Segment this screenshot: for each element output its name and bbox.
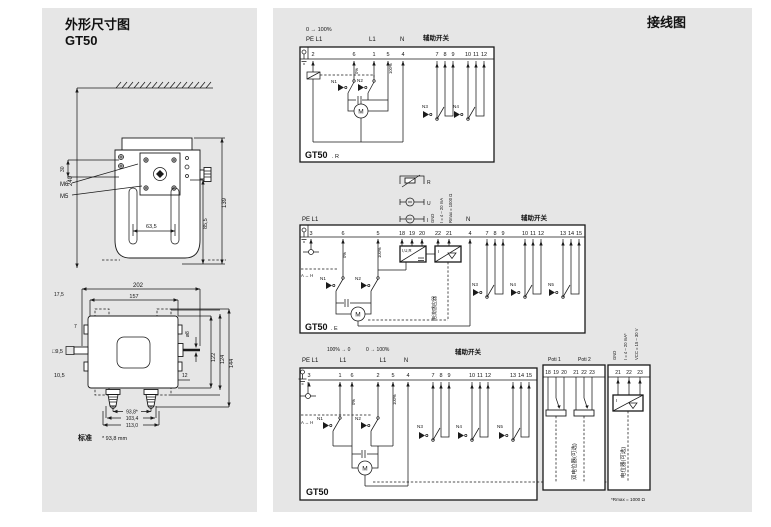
converter-iur: I,U,R — [402, 248, 412, 253]
terminal-9: 9 — [447, 373, 450, 379]
top-view-body — [66, 309, 200, 409]
potentiometer-icon — [546, 410, 566, 416]
terminal-22: 22 — [435, 231, 441, 237]
dim-113-0: 113,0 — [126, 423, 138, 429]
dimension-panel: 外形尺寸图 GT50 — [42, 8, 257, 512]
model-name: GT50 — [65, 33, 130, 49]
pe-l1-label: PE L1 — [306, 37, 323, 43]
gnd-label: GND — [612, 351, 617, 360]
aux-switch-label: 辅助开关 — [455, 347, 482, 356]
pct-0: 0% — [354, 68, 359, 74]
poti-option-label: 电位器(可选) — [619, 447, 627, 478]
terminal-18: 18 — [545, 370, 551, 376]
terminal-21: 21 — [573, 370, 579, 376]
terminal-15: 15 — [526, 373, 532, 379]
standard-label: 标准 — [77, 433, 92, 442]
terminal-4: 4 — [468, 231, 471, 237]
cable-gland-icon — [106, 390, 120, 395]
terminal-6: 6 — [350, 373, 353, 379]
pe-l1-label: PE L1 — [302, 217, 319, 223]
dim-144: 144 — [229, 359, 235, 368]
dim-93-8: 93,8* — [126, 410, 138, 416]
terminal-7: 7 — [485, 231, 488, 237]
poti1-label: Poti 1 — [548, 357, 561, 363]
terminal-4: 4 — [401, 52, 404, 58]
terminal-23: 23 — [637, 370, 643, 376]
poti-option-box: Poti 1 Poti 2 18 19 20 21 22 23 双电位器(可选) — [543, 357, 605, 490]
range-close-label: 100% → 0 — [327, 347, 351, 353]
switch-n5: N5 — [548, 282, 554, 287]
actuator-body — [102, 138, 226, 260]
terminal-21: 21 — [615, 370, 621, 376]
terminal-10: 10 — [465, 52, 471, 58]
converter-i: I — [616, 398, 617, 403]
diagram-gt50-e: PE L1 N 辅助开关 3 6 5 18 19 20 22 21 4 7 8 … — [300, 213, 585, 333]
auto-manual-label: A ↔ H — [301, 420, 313, 425]
relay-icon — [307, 72, 320, 79]
dim-103-4: 103,4 — [126, 416, 139, 422]
rmax-footnote: *Rmax = 1000 Ω — [611, 497, 646, 502]
source-i-label: I — [427, 218, 428, 224]
l1-label: L1 — [380, 358, 387, 364]
terminal-3: 3 — [309, 231, 312, 237]
diagram-gt50-r: 0 → 100% PE L1 L1 N 辅助开关 2 6 1 5 4 7 8 9… — [300, 27, 494, 162]
switch-n1: N1 — [320, 276, 326, 281]
model-gt50-r: GT50 — [305, 150, 328, 160]
motor-m: M — [355, 312, 360, 319]
current-sensor-label: 电流感应器 — [431, 296, 438, 321]
pct-0: 0% — [342, 252, 347, 258]
dim-30: 30 — [60, 166, 66, 172]
terminal-22: 22 — [626, 370, 632, 376]
switch-n2: N2 — [355, 416, 361, 421]
terminal-9: 9 — [501, 231, 504, 237]
page-title: 外形尺寸图 — [65, 17, 130, 33]
terminal-13: 13 — [560, 231, 566, 237]
ceiling-hatch — [77, 82, 213, 88]
model-suffix-e: . E — [331, 326, 338, 332]
source-u-label: U — [427, 201, 431, 207]
aux-switch-label: 辅助开关 — [521, 213, 548, 222]
dual-poti-label: 双电位器(可选) — [570, 443, 578, 480]
terminal-22: 22 — [581, 370, 587, 376]
square-shaft-icon — [74, 347, 88, 354]
terminal-15: 15 — [576, 231, 582, 237]
motor-m: M — [362, 466, 367, 473]
terminal-9: 9 — [451, 52, 454, 58]
label-m6: M6 — [60, 182, 69, 188]
current-output-option-box: GND I = 4 – 20 mA* VCC = 15 – 30 V 21 22… — [608, 328, 650, 502]
rmax-label: Rmax = 1000 Ω — [448, 194, 453, 223]
terminal-18: 18 — [399, 231, 405, 237]
n-label: N — [400, 37, 404, 43]
terminal-11: 11 — [477, 373, 483, 379]
standard-note: * 93,8 mm — [102, 436, 127, 442]
switch-n2: N2 — [355, 276, 361, 281]
terminal-1: 1 — [338, 373, 341, 379]
terminal-12: 12 — [538, 231, 544, 237]
range-label: 0 → 100% — [306, 27, 332, 33]
dim-124: 124 — [220, 355, 226, 364]
dim-202: 202 — [133, 283, 144, 289]
terminal-3: 3 — [307, 373, 310, 379]
aux-switch-label: 辅助开关 — [423, 33, 450, 42]
l1-label: L1 — [369, 37, 376, 43]
switch-n3: N3 — [417, 424, 423, 429]
terminal-14: 14 — [568, 231, 574, 237]
terminal-1: 1 — [372, 52, 375, 58]
terminal-10: 10 — [522, 231, 528, 237]
wiring-diagrams: 0 → 100% PE L1 L1 N 辅助开关 2 6 1 5 4 7 8 9… — [273, 8, 752, 512]
terminal-5: 5 — [386, 52, 389, 58]
terminal-19: 19 — [553, 370, 559, 376]
model-gt50: GT50 — [306, 487, 329, 497]
terminal-20: 20 — [419, 231, 425, 237]
pe-l1-label: PE L1 — [302, 358, 319, 364]
terminal-11: 11 — [530, 231, 536, 237]
switch-n1: N1 — [317, 416, 323, 421]
terminal-12: 12 — [485, 373, 491, 379]
source-r-label: R — [427, 180, 431, 186]
terminal-5: 5 — [376, 231, 379, 237]
switch-n4: N4 — [456, 424, 462, 429]
dim-139: 139 — [222, 197, 228, 208]
switch-n5: N5 — [497, 424, 503, 429]
converter-i: I — [438, 249, 439, 254]
left-panel-title: 外形尺寸图 GT50 — [65, 17, 130, 49]
switch-n3: N3 — [472, 282, 478, 287]
terminal-21: 21 — [446, 231, 452, 237]
terminal-19: 19 — [409, 231, 415, 237]
switch-n4: N4 — [453, 104, 459, 109]
terminal-6: 6 — [341, 231, 344, 237]
current-range-label: I = 4 – 20 mA — [439, 198, 444, 223]
terminal-7: 7 — [431, 373, 434, 379]
dim-85-5: 85,5 — [203, 218, 209, 229]
terminal-10: 10 — [469, 373, 475, 379]
terminal-6: 6 — [352, 52, 355, 58]
potentiometer-icon — [574, 410, 594, 416]
terminal-8: 8 — [493, 231, 496, 237]
dim-157: 157 — [129, 294, 138, 300]
l1-label: L1 — [340, 358, 347, 364]
dim-63-5: 63,5 — [146, 224, 157, 230]
dim-7: 7 — [74, 324, 77, 330]
terminal-13: 13 — [510, 373, 516, 379]
dim-10-5: 10,5 — [54, 373, 65, 379]
pct-100: 100% — [392, 394, 397, 405]
terminal-5: 5 — [391, 373, 394, 379]
vcc-label: VCC = 15 – 30 V — [634, 328, 639, 360]
dim-17-5: 17,5 — [54, 292, 64, 298]
switch-n2: N2 — [357, 78, 363, 83]
range-open-label: 0 → 100% — [366, 347, 390, 353]
dim-12: 12 — [182, 373, 188, 379]
model-gt50-e: GT50 — [305, 322, 328, 332]
terminal-2: 2 — [376, 373, 379, 379]
cable-gland-icon — [144, 390, 158, 395]
terminal-20: 20 — [561, 370, 567, 376]
dim-square-9-5: □9,5 — [52, 349, 63, 355]
terminal-7: 7 — [435, 52, 438, 58]
model-suffix-r: . R — [332, 154, 339, 160]
n-label: N — [466, 217, 470, 223]
terminal-8: 8 — [439, 373, 442, 379]
dim-122: 122 — [211, 353, 217, 362]
current-range-label: I = 4 – 20 mA* — [623, 333, 628, 360]
cable-gland-icon — [200, 170, 204, 179]
auto-manual-label: A ↔ H — [301, 273, 313, 278]
input-source-symbols: R U I GND I = 4 – 20 mA Rmax = 1000 Ω — [400, 175, 453, 224]
poti2-label: Poti 2 — [578, 357, 591, 363]
dim-dia8: ø8 — [185, 331, 191, 337]
n-label: N — [404, 358, 408, 364]
terminal-8: 8 — [443, 52, 446, 58]
switch-n1: N1 — [331, 79, 337, 84]
switch-n3: N3 — [422, 104, 428, 109]
terminal-14: 14 — [518, 373, 524, 379]
switch-n4: N4 — [510, 282, 516, 287]
terminal-11: 11 — [473, 52, 479, 58]
wiring-panel: 接线图 0 → 100% PE L1 L1 N 辅助开关 2 6 1 5 4 7… — [273, 8, 752, 512]
terminal-23: 23 — [589, 370, 595, 376]
pct-100: 100% — [377, 247, 382, 258]
actuator-front-view: 240 30 M6 M5 139 85,5 63,5 — [50, 74, 250, 289]
terminal-2: 2 — [311, 52, 314, 58]
label-m5: M5 — [60, 194, 69, 200]
motor-m: M — [358, 109, 363, 116]
pct-0: 0% — [351, 399, 356, 405]
terminal-4: 4 — [406, 373, 409, 379]
gnd-label: GND — [430, 214, 435, 223]
actuator-top-view: 202 157 17,5 7 □9,5 10,5 ø8 122 124 144 … — [50, 280, 255, 515]
terminal-12: 12 — [481, 52, 487, 58]
